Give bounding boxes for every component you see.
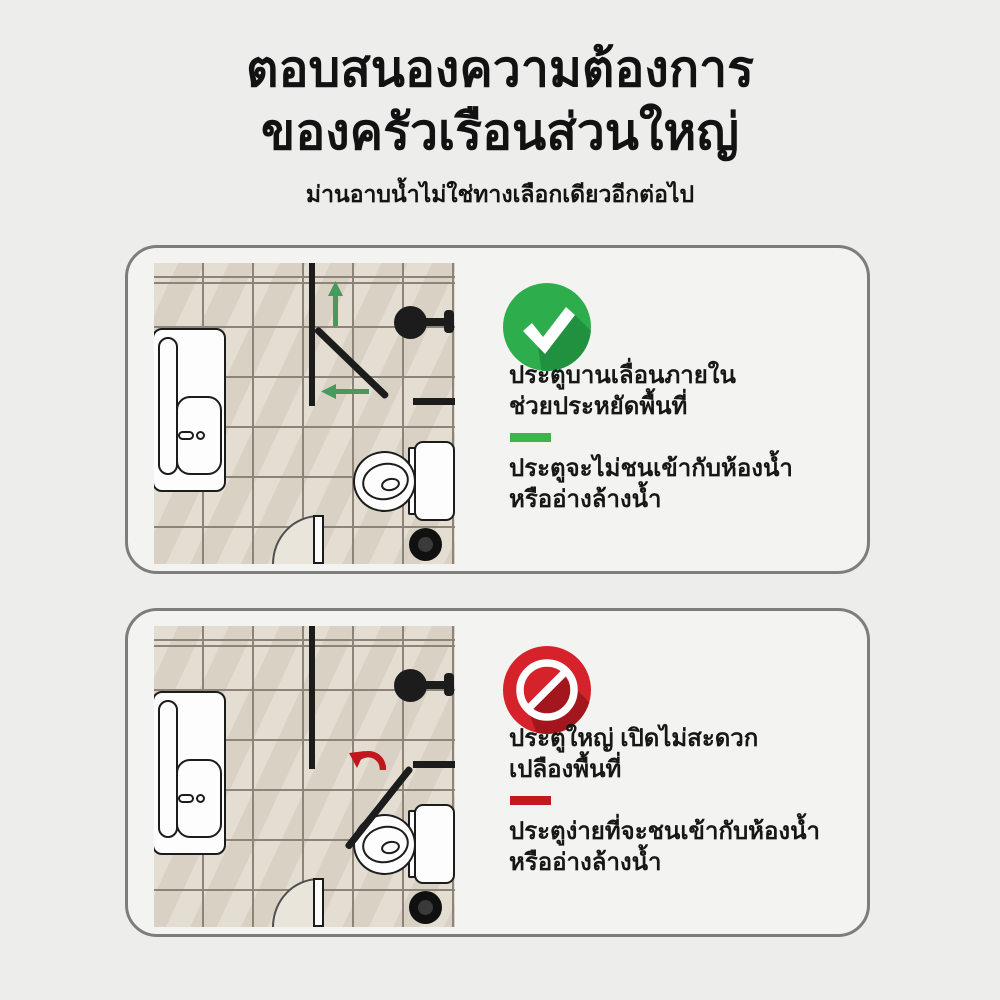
- good-body-line1: ประตูจะไม่ชนเข้ากับห้องน้ำ: [509, 453, 859, 484]
- arrow-rotate-left-icon: [349, 749, 386, 774]
- arrow-left-icon: [321, 384, 369, 399]
- bad-heading-line1: ประตูใหญ่ เปิดไม่สะดวก: [509, 723, 859, 754]
- good-heading-line2: ช่วยประหยัดพื้นที่: [509, 391, 859, 422]
- good-body-line2: หรืออ่างล้างน้ำ: [509, 484, 859, 515]
- no-entry-icon: [502, 645, 592, 735]
- bad-body-line2: หรืออ่างล้างน้ำ: [509, 847, 859, 878]
- floor-drain: [409, 528, 442, 561]
- good-option-card: ประตูบานเลื่อนภายใน ช่วยประหยัดพื้นที่ ป…: [125, 245, 870, 574]
- arrow-up-icon: [328, 281, 343, 326]
- bad-option-text: ประตูใหญ่ เปิดไม่สะดวก เปลืองพื้นที่ ประ…: [509, 723, 859, 878]
- bathtub-rim: [158, 700, 178, 838]
- faucet: [178, 794, 194, 803]
- right-wall-segment: [413, 398, 455, 405]
- page-title-line2: ของครัวเรือนส่วนใหญ่: [0, 101, 1000, 164]
- door-swing-arc: [272, 515, 319, 564]
- bad-option-card: ประตูใหญ่ เปิดไม่สะดวก เปลืองพื้นที่ ประ…: [125, 608, 870, 937]
- toilet-tank: [414, 804, 455, 884]
- check-icon: [502, 282, 592, 372]
- good-heading-line1: ประตูบานเลื่อนภายใน: [509, 360, 859, 391]
- red-divider: [510, 796, 551, 805]
- wall-fixture-cap: [444, 310, 454, 333]
- partition-wall: [309, 626, 315, 769]
- bad-heading-line2: เปลืองพื้นที่: [509, 754, 859, 785]
- bad-body-line1: ประตูง่ายที่จะชนเข้ากับห้องน้ำ: [509, 816, 859, 847]
- door-swing-arc: [272, 878, 319, 927]
- toilet-tank: [414, 441, 455, 521]
- floor-drain: [409, 891, 442, 924]
- right-wall-segment: [413, 761, 455, 768]
- door-leaf: [313, 515, 324, 564]
- faucet-knob: [196, 794, 205, 803]
- wall-fixture-cap: [444, 673, 454, 696]
- partition-wall: [309, 263, 315, 406]
- green-divider: [510, 433, 551, 442]
- floor-plan-bad: [154, 626, 455, 927]
- header: ตอบสนองความต้องการ ของครัวเรือนส่วนใหญ่ …: [0, 38, 1000, 213]
- page-title-line1: ตอบสนองความต้องการ: [0, 38, 1000, 101]
- floor-plan-good: [154, 263, 455, 564]
- faucet: [178, 431, 194, 440]
- page-subtitle: ม่านอาบน้ำไม่ใช่ทางเลือกเดียวอีกต่อไป: [0, 177, 1000, 213]
- bathtub-rim: [158, 337, 178, 475]
- faucet-knob: [196, 431, 205, 440]
- door-leaf: [313, 878, 324, 927]
- good-option-text: ประตูบานเลื่อนภายใน ช่วยประหยัดพื้นที่ ป…: [509, 360, 859, 515]
